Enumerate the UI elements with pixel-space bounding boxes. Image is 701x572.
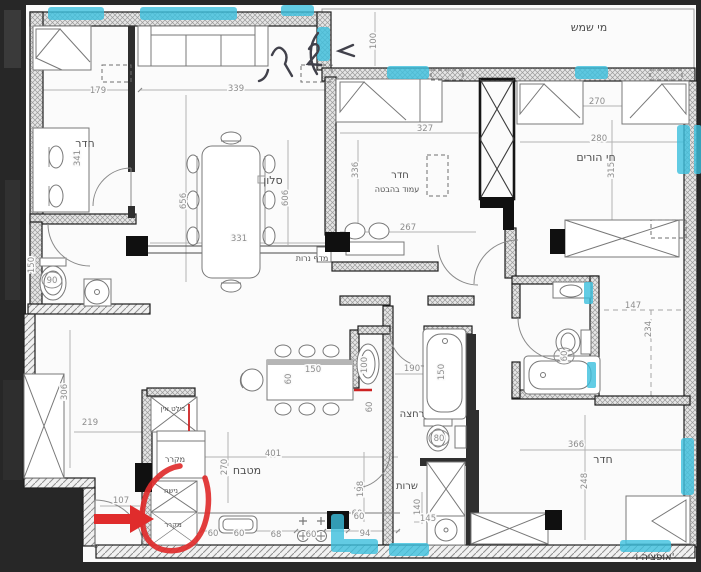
dim-219: 219 (82, 418, 98, 428)
label-wc: שרות (396, 481, 418, 492)
label-candle-shelf: מדף נרות (296, 254, 329, 263)
dim-150: 150 (27, 257, 37, 273)
dim-190: 190 (404, 364, 420, 374)
bed-parents-left (517, 81, 583, 124)
label-fridge: מקרר (165, 455, 185, 464)
dim-606: 606 (281, 190, 291, 206)
dim-234: 234 (644, 321, 654, 337)
wardrobe-left (24, 374, 64, 478)
label-fridge-2: מקרר (164, 521, 182, 529)
dim-336: 336 (351, 162, 361, 178)
label-niche: נישה (164, 487, 178, 495)
dim-147: 147 (625, 301, 641, 311)
dim-94: 94 (360, 529, 371, 539)
dim-60: 60 (354, 512, 365, 522)
dim-60: 60 (365, 402, 375, 413)
dim-68: 68 (271, 530, 282, 540)
dim-656: 656 (179, 193, 189, 209)
dim-80: 80 (434, 434, 445, 444)
dim-150: 150 (305, 365, 321, 375)
label-column-note: עמוד בהבטה (375, 185, 419, 194)
bed-parents-right (622, 81, 689, 124)
dim-60: 60 (208, 529, 219, 539)
dim-60: 60 (284, 374, 294, 385)
dim-145: 145 (420, 514, 436, 524)
label-kitchen: מטבח (233, 464, 261, 477)
label-room-bottomright: חדר (593, 453, 612, 466)
dim-401: 401 (265, 449, 281, 459)
dim-60: 60 (560, 351, 570, 362)
bed-bottomright (626, 496, 690, 544)
bed-middle (336, 79, 442, 122)
bed-topleft (33, 26, 91, 70)
dim-198: 198 (356, 481, 366, 497)
dim-341: 341 (73, 150, 83, 166)
dim-331: 331 (231, 234, 247, 244)
floor-plan-screenshot: מי שמשחדרסלוןמדף נרותחדרעמוד בהבטהחי הור… (0, 0, 701, 572)
label-living: סלון (263, 174, 282, 187)
dim-100: 100 (360, 357, 370, 373)
label-solar-water: מי שמש (571, 21, 608, 34)
dim-270: 270 (589, 97, 605, 107)
dim-60: 60 (306, 530, 317, 540)
dim-107: 107 (113, 496, 129, 506)
dim-90: 90 (47, 276, 58, 286)
label-option: אופציה ו' (635, 552, 674, 563)
label-built-in: בילט אין (161, 405, 186, 413)
label-room-middle: חדר (391, 170, 409, 181)
label-room-topleft: חדר (75, 137, 94, 150)
dim-60: 60 (234, 529, 245, 539)
dim-315: 315 (607, 162, 617, 178)
dim-150: 150 (437, 364, 447, 380)
sofa (138, 26, 268, 66)
label-bath: רחצה (400, 409, 425, 420)
dim-339: 339 (228, 84, 244, 94)
dim-327: 327 (417, 124, 433, 134)
dim-280: 280 (591, 134, 607, 144)
dim-306: 306 (60, 384, 70, 400)
floor-plan-svg: מי שמשחדרסלוןמדף נרותחדרעמוד בהבטהחי הור… (0, 0, 701, 572)
washer-guest (84, 279, 111, 306)
dim-267: 267 (400, 223, 416, 233)
dim-140: 140 (413, 499, 423, 515)
dim-179: 179 (90, 86, 106, 96)
dim-248: 248 (580, 473, 590, 489)
dim-366: 366 (568, 440, 584, 450)
dim-270: 270 (220, 459, 230, 475)
wardrobe-bottomright (471, 513, 548, 544)
wc-cabinet (427, 462, 465, 516)
dim-100: 100 (369, 33, 379, 49)
